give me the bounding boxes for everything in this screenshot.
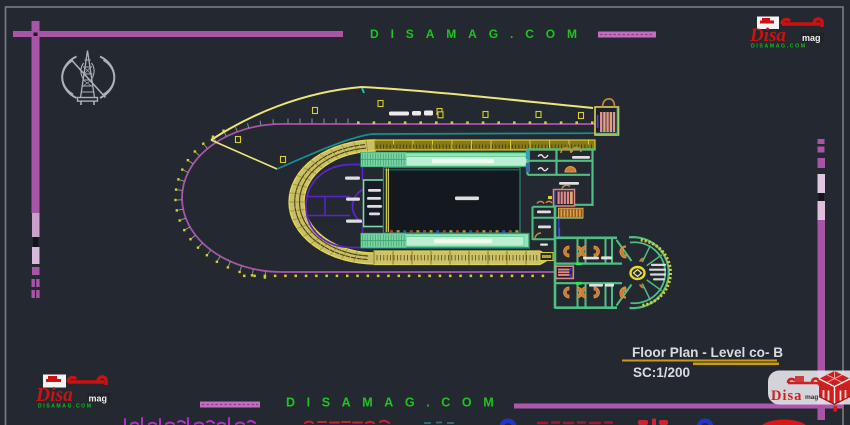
svg-text:Disa: Disa [771, 388, 802, 404]
svg-text:mag: mag [802, 33, 821, 43]
svg-text:DISAMAG.COM: DISAMAG.COM [286, 396, 505, 410]
svg-text:DISAMAG.COM: DISAMAG.COM [751, 44, 807, 50]
svg-text:SC:1/200: SC:1/200 [633, 365, 690, 380]
svg-text:Floor Plan - Level co- B: Floor Plan - Level co- B [632, 345, 783, 360]
svg-text:DISAMAG.COM: DISAMAG.COM [38, 404, 93, 410]
svg-text:mag: mag [89, 394, 108, 404]
svg-text:mag: mag [805, 394, 818, 401]
svg-text:DISAMAG.COM: DISAMAG.COM [370, 27, 589, 41]
